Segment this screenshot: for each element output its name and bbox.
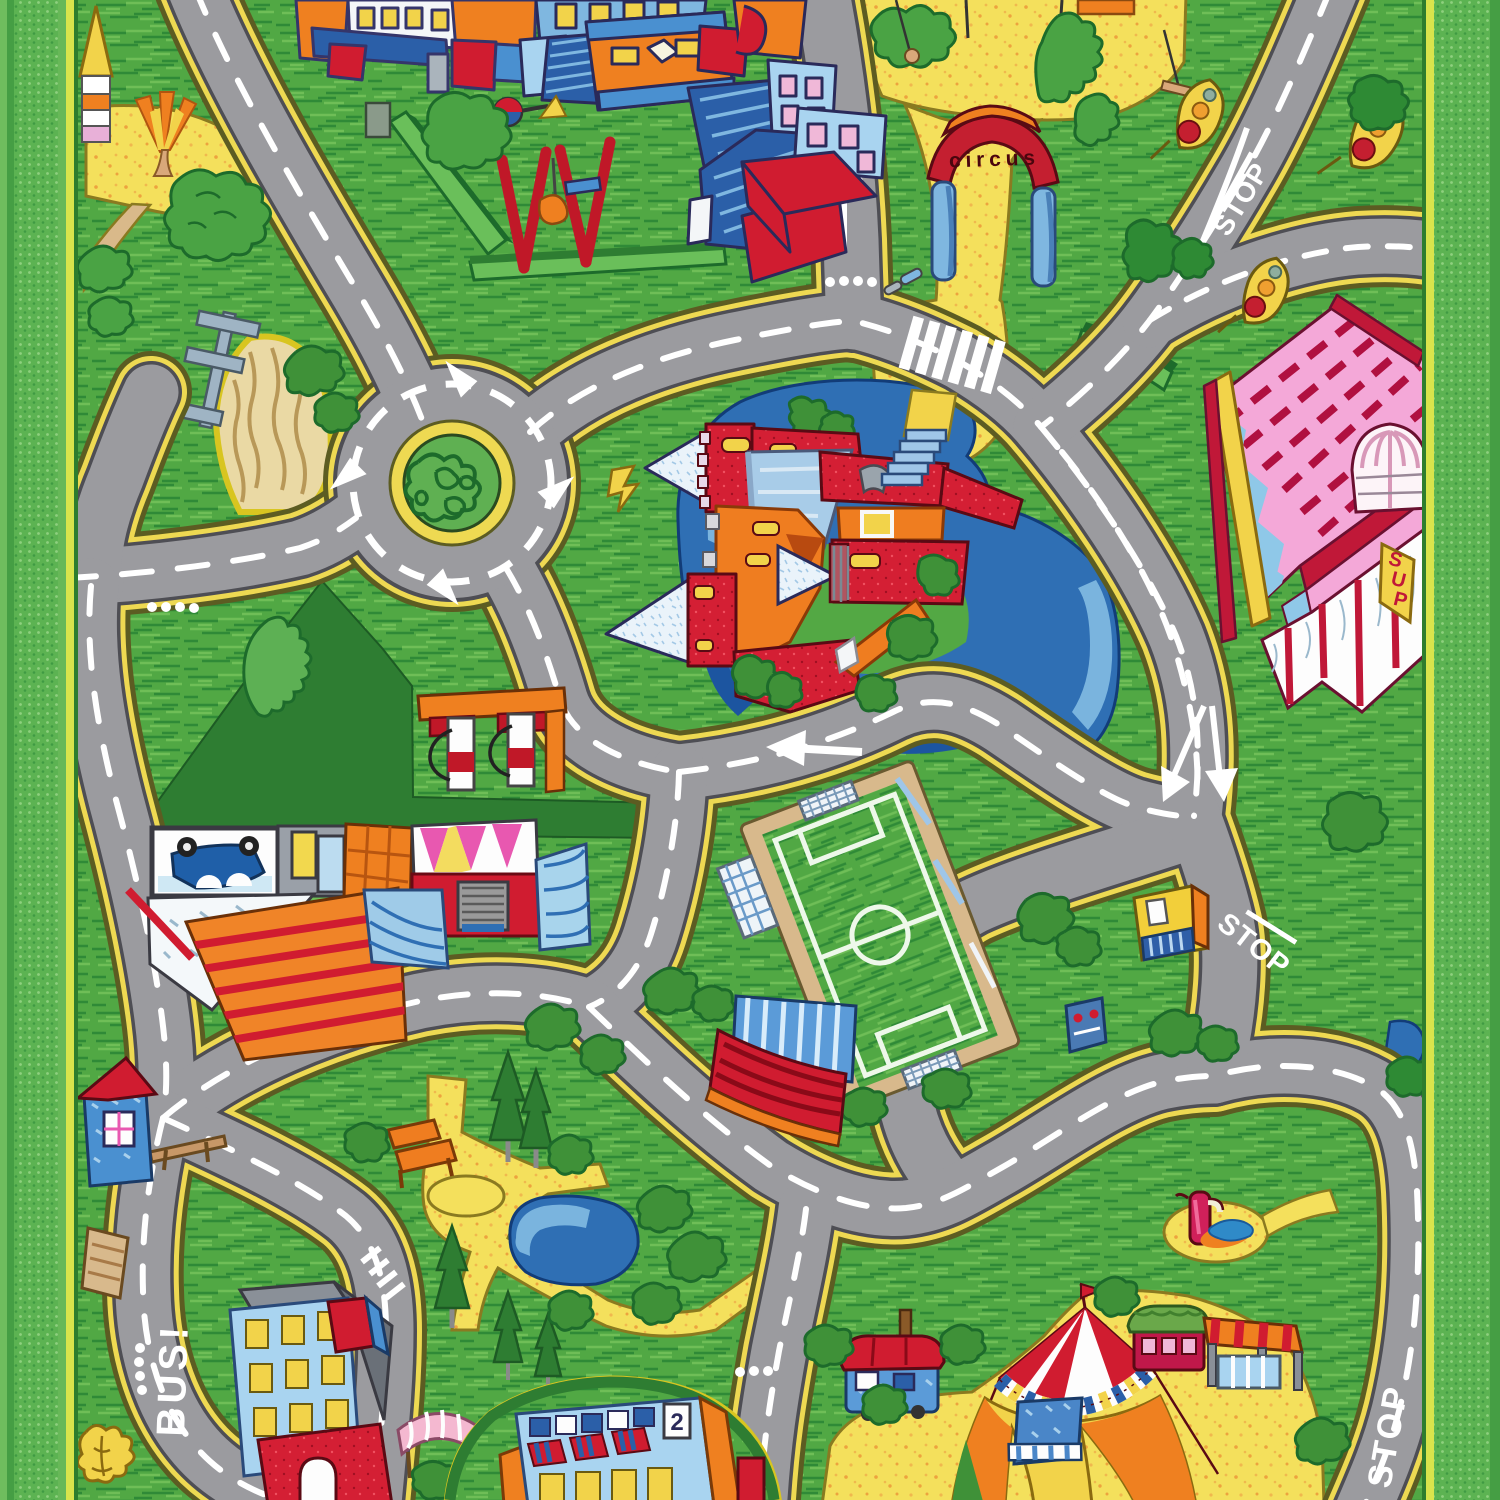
svg-text:2: 2 xyxy=(670,1409,683,1436)
svg-text:BUS!: BUS! xyxy=(149,1322,197,1437)
